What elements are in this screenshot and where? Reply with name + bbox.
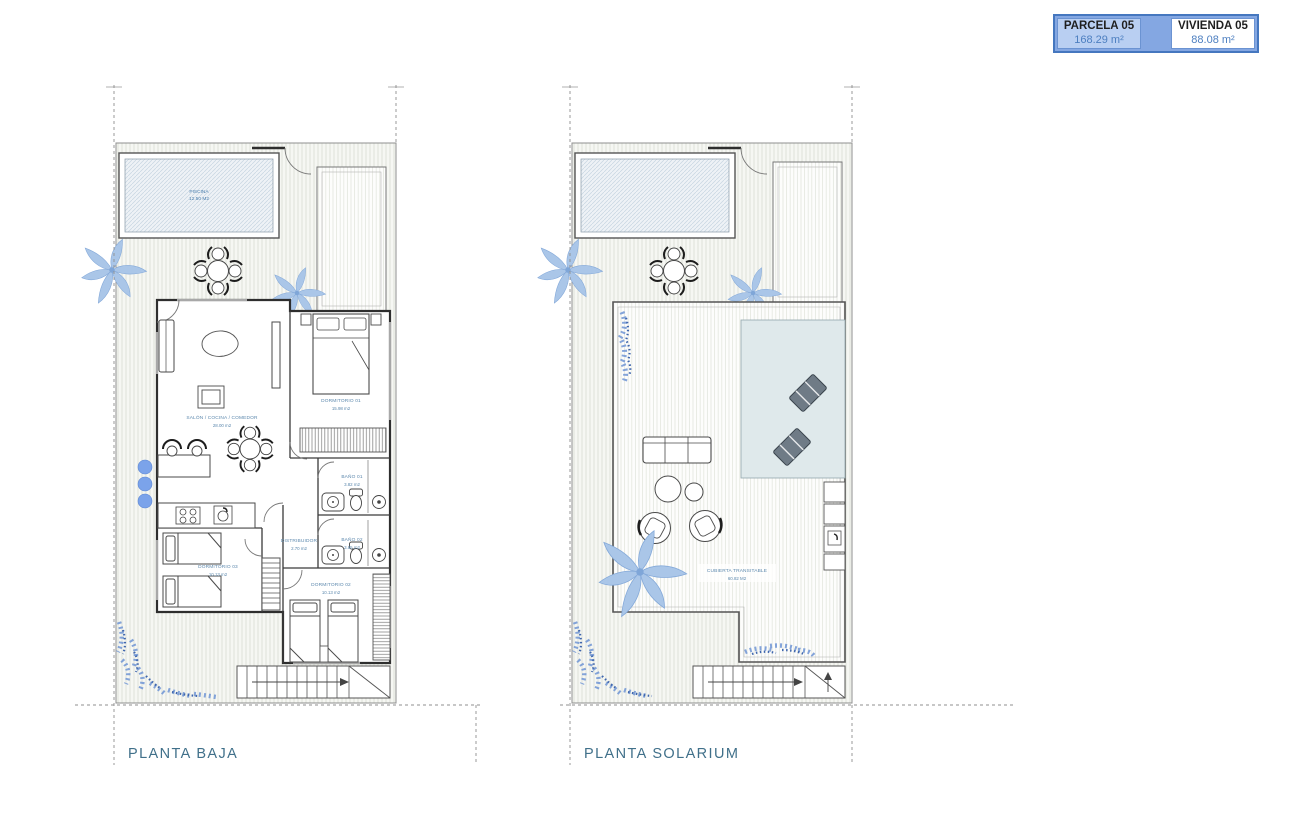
distribuidor-area: 2.70 m2 [291,546,307,551]
parcela-area-value: 168.29 m² [1074,34,1124,48]
internal-stairs [262,558,280,610]
swivel-chair [690,511,722,542]
dorm1-area: 15.98 m2 [332,406,351,411]
dorm3-name: DORMITORIO 03 [198,564,238,570]
single-bed [328,600,358,662]
round-bushes [138,460,152,508]
double-bed [301,314,381,394]
wardrobe [300,428,386,452]
armchair-table [198,386,224,408]
parcela-label: PARCELA 05 [1064,19,1134,33]
outdoor-sofa [643,437,711,463]
cubierta-name: CUBIERTA TRANSITABLE [707,568,767,574]
sofa [159,320,174,372]
dorm2-name: DORMITORIO 02 [311,582,351,588]
salon-area: 28.00 m2 [213,423,232,428]
round-pouf [685,483,703,501]
pool [575,153,735,238]
single-bed [163,533,221,564]
single-bed [290,600,320,662]
bano2-area: 3.85 m2 [344,545,360,550]
pool: PISCINA 12.50 M2 [119,153,279,238]
vivienda-area-value: 88.08 m² [1191,34,1234,48]
planta-solarium-drawing: CUBIERTA TRANSITABLE 60.82 M2 [550,75,1020,775]
solarium-deck: CUBIERTA TRANSITABLE 60.82 M2 [613,302,845,662]
bano1-name: BAÑO 01 [341,473,362,480]
legend-parcela-cell: PARCELA 05 168.29 m² [1057,18,1141,49]
outdoor-kitchen [824,482,845,570]
pool-area: 12.50 M2 [189,196,209,202]
swivel-chair [639,513,671,544]
pool-name: PISCINA [189,189,209,195]
distribuidor-name: DISTRIBUIDOR [281,538,318,544]
tv-unit [272,322,280,388]
kitchen-counter [158,503,255,528]
bano2-name: BAÑO 02 [341,536,362,543]
exterior-stairs [237,666,390,698]
cubierta-area: 60.82 M2 [728,576,747,581]
exterior-stairs [693,666,845,698]
dorm2-area: 10.13 m2 [322,590,341,595]
planta-baja-title: PLANTA BAJA [128,746,238,762]
terrace [317,167,386,311]
vivienda-label: VIVIENDA 05 [1178,19,1248,33]
coffee-table [202,331,238,356]
bano1-area: 3.82 m2 [344,482,360,487]
round-table [655,476,681,502]
pergola-area [741,320,845,478]
dorm1-name: DORMITORIO 01 [321,398,361,404]
salon-name: SALÓN / COCINA / COMEDOR [186,414,258,421]
legend-vivienda-cell: VIVIENDA 05 88.08 m² [1171,18,1255,49]
dorm3-area: 10.13 m2 [209,572,228,577]
planta-baja-drawing: PISCINA 12.50 M2 [70,75,500,775]
legend-box: PARCELA 05 168.29 m² VIVIENDA 05 88.08 m… [1053,14,1259,53]
single-bed [163,576,221,607]
terrace [773,162,842,302]
wardrobe-strip [373,574,390,660]
planta-solarium-title: PLANTA SOLARIUM [584,746,739,762]
nightstand [320,646,328,662]
